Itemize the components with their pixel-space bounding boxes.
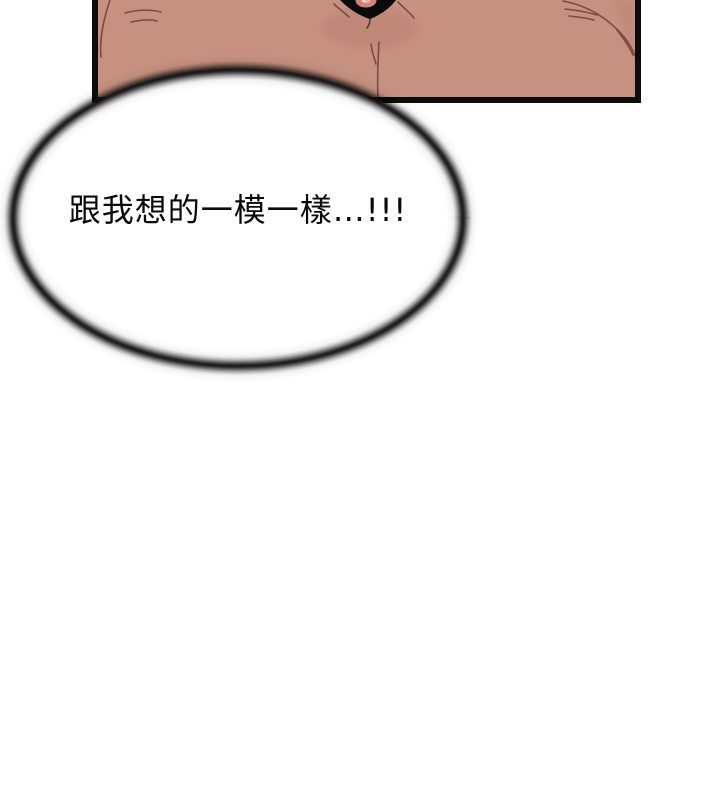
comic-panel <box>92 0 641 103</box>
speech-bubble-text: 跟我想的一模一樣…!!! <box>13 192 463 228</box>
panel-artwork <box>98 0 635 97</box>
comic-page: 跟我想的一模一樣…!!! <box>0 0 720 800</box>
